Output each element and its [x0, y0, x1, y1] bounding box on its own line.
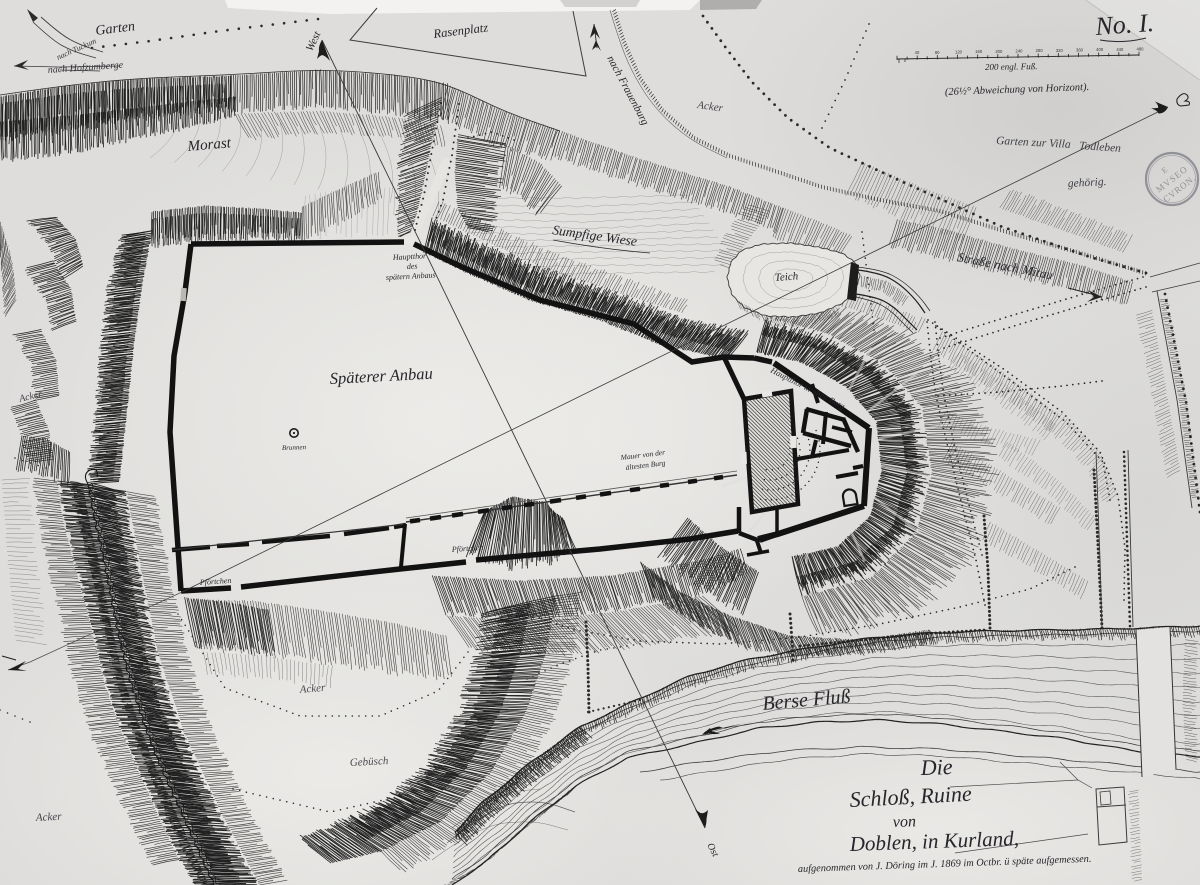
svg-text:Teich: Teich [774, 270, 799, 284]
svg-text:240: 240 [1016, 49, 1024, 54]
svg-text:200: 200 [995, 49, 1003, 54]
svg-text:200 engl. Fuß.: 200 engl. Fuß. [985, 61, 1038, 72]
svg-text:80: 80 [935, 50, 940, 55]
svg-text:320: 320 [1056, 48, 1064, 53]
svg-text:280: 280 [1036, 48, 1044, 53]
svg-text:Gebüsch: Gebüsch [350, 755, 390, 769]
svg-text:400: 400 [1096, 47, 1104, 52]
svg-text:von: von [893, 813, 917, 831]
svg-text:Acker: Acker [35, 811, 63, 824]
svg-text:360: 360 [1076, 48, 1084, 53]
svg-text:Die: Die [919, 754, 953, 780]
svg-text:480: 480 [1137, 47, 1145, 52]
svg-text:Hauptthor: Hauptthor [392, 251, 428, 262]
svg-text:gehörig.: gehörig. [1068, 176, 1107, 190]
svg-text:40: 40 [915, 50, 920, 55]
svg-text:des: des [407, 261, 418, 271]
svg-text:Acker: Acker [298, 682, 326, 696]
svg-text:440: 440 [1116, 47, 1124, 52]
svg-text:160: 160 [975, 49, 983, 54]
svg-text:120: 120 [955, 50, 963, 55]
svg-text:Brunnen: Brunnen [282, 443, 307, 452]
svg-text:No. I.: No. I. [1093, 8, 1154, 41]
